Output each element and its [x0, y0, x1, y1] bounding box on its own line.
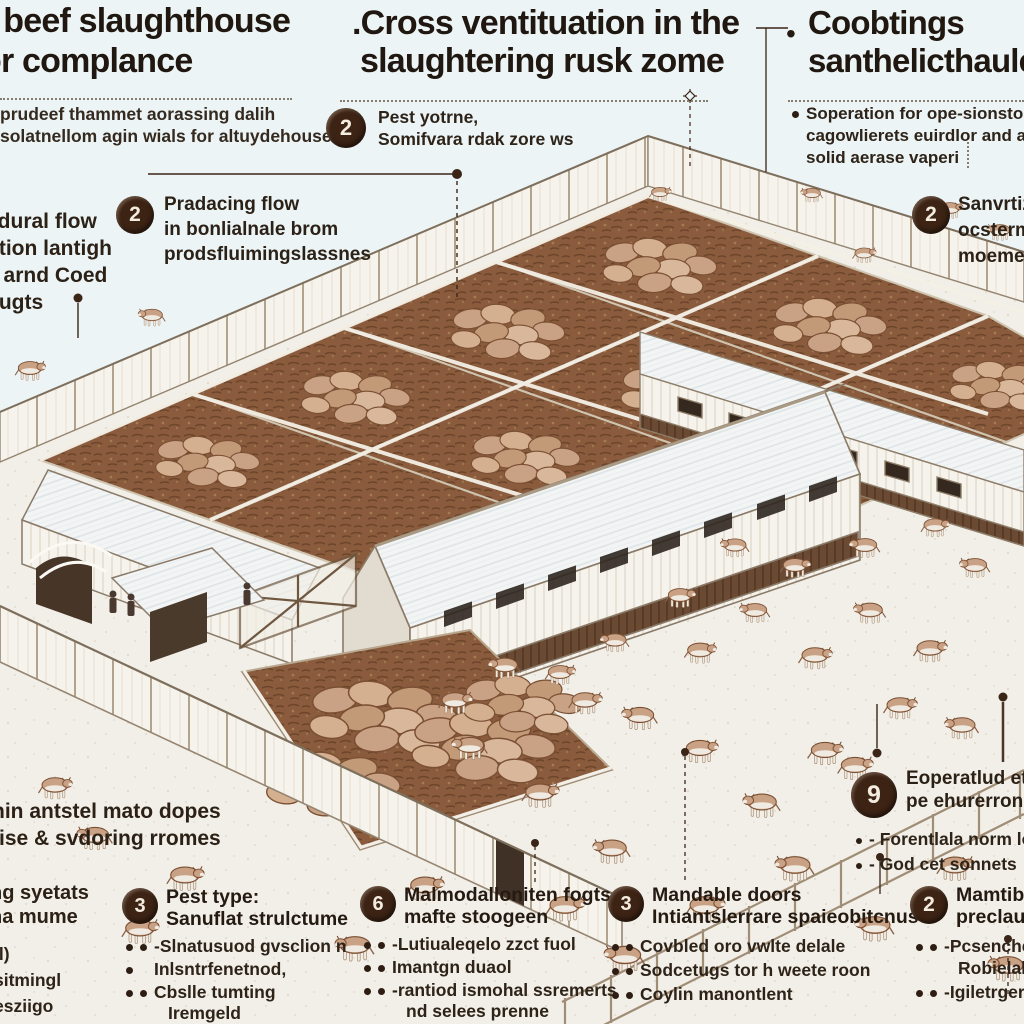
callout-badge-9: 9: [851, 772, 897, 818]
left-edge-line1: adural flow: [0, 210, 97, 234]
storage-title2: mafte stoogeen: [404, 906, 548, 929]
bullet-dot: [930, 944, 937, 951]
subtext-left-line1: prudeef thammet aorassing dalih: [0, 104, 275, 125]
bullet-dot: [856, 863, 862, 869]
pest-type-bullet3: Cbslle tumting: [126, 982, 276, 1003]
mantible-bullet2: Robielal (: [958, 958, 1024, 979]
left-edge-line2: ittion lantigh: [0, 237, 112, 261]
bottom-far-left-frag1: il): [0, 944, 10, 965]
separator-right: [788, 100, 1024, 102]
title-right-line1: Coobtings: [808, 4, 964, 42]
bullet-dot: [612, 944, 619, 951]
storage-bullet2: Imantgn duaol: [364, 957, 512, 978]
callout-badge-3-pest: 3: [122, 888, 158, 924]
bullet-dot: [612, 992, 619, 999]
callout-right-sanit-line2: ocsterma: [958, 220, 1024, 242]
pest-type-bullet1: -Slnatusuod gvsclion n: [126, 936, 347, 957]
doors-title1: Mandable doors: [652, 884, 802, 907]
pest-type-title1: Pest type:: [166, 886, 259, 909]
callout-badge-2-left: 2: [116, 196, 154, 234]
bullet-dot: [612, 968, 619, 975]
bottom-far-left-line1: ng syetats: [0, 882, 89, 905]
callout-right-sanit-line1: Sanvrtizz: [958, 194, 1024, 216]
callout-badge-2-right: 2: [912, 196, 950, 234]
mantible-title1: Mamtible: [956, 884, 1024, 907]
doors-bullet3: Coylin manontlent: [612, 984, 793, 1005]
bullet-dot: [140, 990, 147, 997]
callout-nine-line2: pe ehurerron flo (: [906, 791, 1024, 813]
mantible-title2: preclaul: [956, 906, 1024, 929]
left-edge-line3: e arnd Coed: [0, 264, 107, 288]
subtext-right-line1: Soperation for ope-sionstol pa: [792, 104, 1024, 124]
subtext-right-line3: solid aerase vaperi: [806, 148, 959, 168]
bullet-dot: [126, 990, 133, 997]
callout-top-center-line1: Pest yotrne,: [378, 107, 478, 128]
bullet-dot: [626, 944, 633, 951]
storage-bullet4: nd selees prenne: [406, 1001, 549, 1022]
callout-right-sanit-line3: moemer: [958, 246, 1024, 268]
bullet-dot: [930, 990, 937, 997]
title-right-line2: santhelicthaule: [808, 42, 1024, 80]
mid-left-line1: hin antstel mato dopes: [0, 800, 221, 824]
doors-bullet2: Sodcetugs tor h weete roon: [612, 960, 870, 981]
title-center-line2: slaughtering rusk zome: [360, 42, 724, 81]
mantible-bullet3: -Igiletrger: [916, 982, 1024, 1003]
bullet-dot: [916, 944, 923, 951]
storage-title1: Malmodalloniten fogts: [404, 884, 611, 907]
bottom-far-left-line2: na mume: [0, 906, 78, 929]
callout-nine-bullet2: - God cet sonnets: [856, 854, 1017, 875]
callout-badge-3-doors: 3: [608, 886, 644, 922]
title-left-line2: or complance: [0, 42, 192, 81]
pest-type-title2: Sanuflat strulctume: [166, 908, 348, 931]
callout-left-flow-line3: prodsfluimingslassnes: [164, 244, 371, 266]
tick-dotted-right: [967, 142, 969, 168]
callout-badge-2-top-center: 2: [326, 108, 366, 148]
callout-badge-2-bottom-right: 2: [910, 886, 948, 924]
bullet-dot: [626, 968, 633, 975]
screenshot-root: { "palette":{"bg":"#ecf4f6","ink":"#281d…: [0, 0, 1024, 1024]
doors-bullet1: Covbled oro vwlte delale: [612, 936, 845, 957]
left-edge-line4: bugts: [0, 291, 43, 315]
callout-nine-line1: Eoperatlud etojd: [906, 768, 1024, 790]
separator-left: [0, 98, 292, 100]
callout-left-flow-line1: Pradacing flow: [164, 194, 299, 216]
separator-center: [340, 100, 708, 102]
callout-badge-6: 6: [360, 886, 396, 922]
bullet-dot: [626, 992, 633, 999]
pest-type-bullet4: Iremgeld: [168, 1003, 241, 1024]
mantible-bullet1: -Pcsenche: [916, 936, 1024, 957]
callout-nine-bullet1: - Forentlala norm lo: [856, 829, 1024, 850]
mid-left-line2: tise & svdoring rromes: [0, 827, 221, 851]
bullet-dot: [378, 942, 385, 949]
callout-top-center-line2: Somifvara rdak zore ws: [378, 129, 574, 150]
bullet-dot: [140, 944, 147, 951]
bullet-dot: [364, 988, 371, 995]
bullet-dot: [916, 990, 923, 997]
pest-type-bullet2: Inlsntrfenetnod,: [126, 959, 286, 980]
bullet-dot: [364, 942, 371, 949]
bullet-dot: [792, 111, 799, 118]
bullet-right-title: •: [786, 18, 796, 50]
bullet-dot: [378, 988, 385, 995]
subtext-right-line2: cagowlierets euirdlor and and oc: [806, 126, 1024, 146]
title-center-line1: .Cross ventituation in the: [352, 4, 739, 43]
bottom-far-left-frag3: esziigo: [0, 996, 53, 1017]
bullet-dot: [856, 838, 862, 844]
bullet-dot: [364, 965, 371, 972]
bullet-dot: [126, 967, 133, 974]
bottom-far-left-frag2: sitmingl: [0, 970, 61, 991]
title-left-line1: l beef slaughthouse: [0, 2, 290, 41]
callout-left-flow-line2: in bonlialnale brom: [164, 219, 338, 241]
bullet-dot: [126, 944, 133, 951]
subtext-left-line2: solatnellom agin wials for altuydehouse: [0, 126, 332, 147]
storage-bullet1: -Lutiualeqelo zzct fuol: [364, 934, 576, 955]
doors-title2: Intiantslerrare spaieobitcnus: [652, 906, 919, 929]
storage-bullet3: -rantiod ismohal ssremerts: [364, 980, 617, 1001]
bullet-dot: [378, 965, 385, 972]
